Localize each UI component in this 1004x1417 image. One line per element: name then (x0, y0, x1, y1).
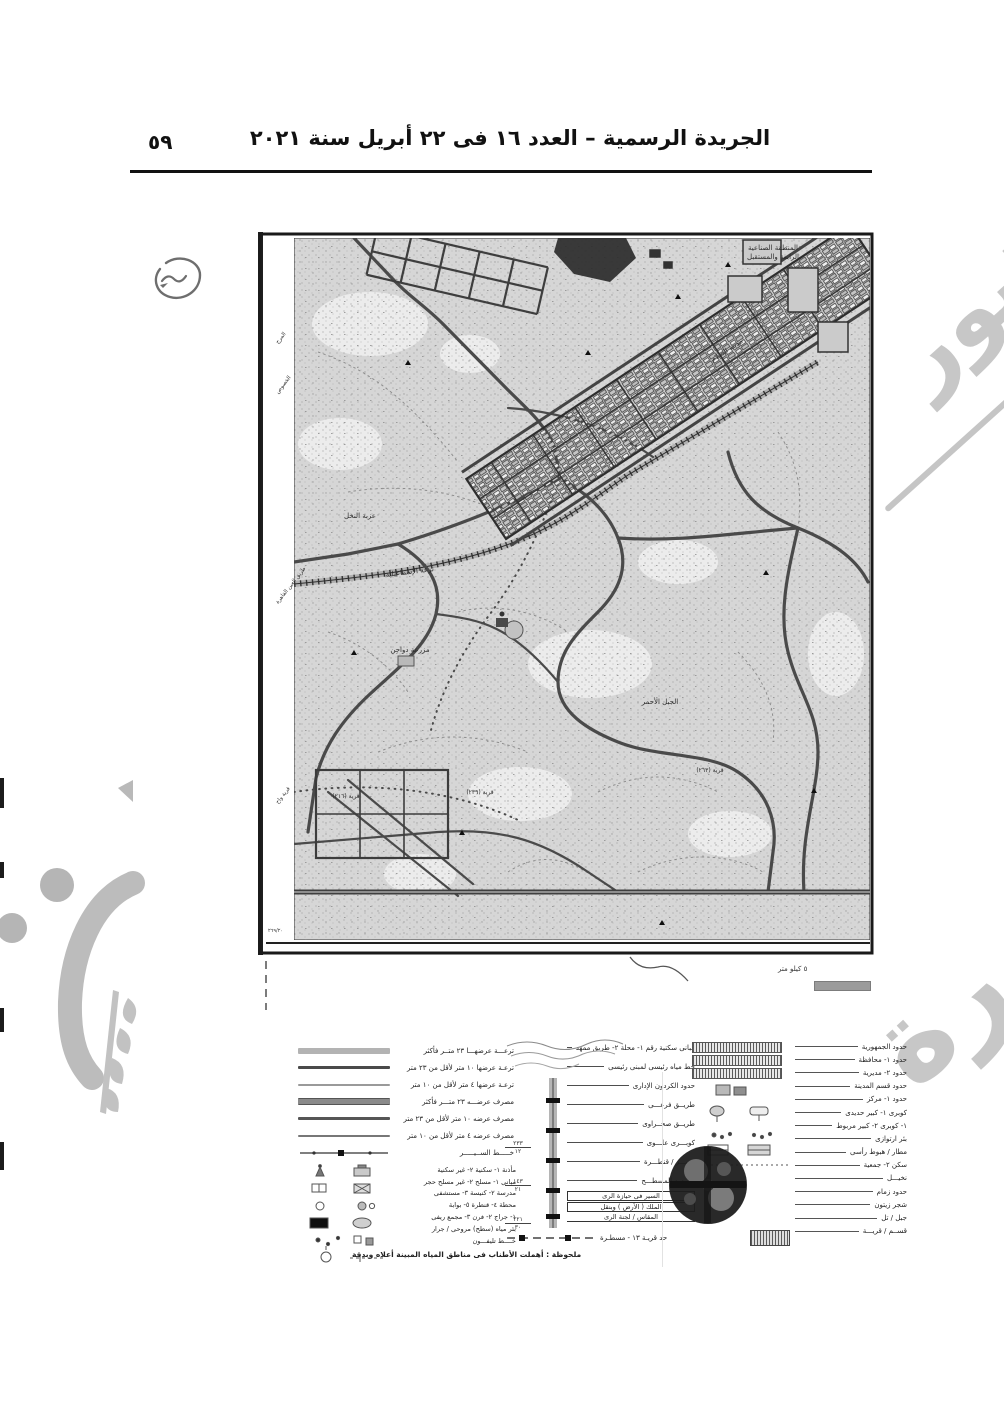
canal-wide-line-sample (298, 1048, 396, 1054)
map-corner-number: ٢٦٩/٢٠ (268, 928, 283, 934)
scale-bar (814, 981, 871, 991)
page-number: ٥٩ (148, 130, 172, 154)
map-label: قرية (٢٦٣) (696, 767, 723, 774)
fold-line (662, 1072, 663, 1267)
header-rule (130, 170, 872, 173)
railway-sample (543, 1074, 563, 1234)
legend-row: جبل / تل (795, 1211, 907, 1224)
legend-row: بئر مياه (سطح) مروحى / جرار (396, 1223, 520, 1235)
legend-row: مصرف عرضـــه ٢٣ متـــر فأكثر (298, 1093, 520, 1110)
contour-sample (505, 1038, 625, 1072)
legend-row: بئر ارتوازى (795, 1132, 907, 1145)
legend-row: مصرف عرضه ٤ متر لأقل من ١٠ متر (298, 1127, 520, 1144)
scale-label: ٥ كيلو متر (778, 965, 807, 973)
watermark-slash (884, 382, 1004, 512)
legend-row: طريــق صحــراوى (567, 1114, 695, 1133)
legend-right-group: حدود الجمهورية حدود ١- محافظة حدود ٢- مد… (795, 1040, 907, 1238)
map-label: عزبة النخل (344, 512, 376, 520)
km-post-sample: ٢٢١ ٣٠ (505, 1216, 531, 1231)
drain-small-line-sample (298, 1135, 396, 1137)
page-title: الجريدة الرسمية – العدد ١٦ فى ٢٢ أبريل س… (240, 126, 780, 150)
legend-row: حدود الجمهورية (795, 1040, 907, 1053)
district-border-sample (692, 1068, 782, 1079)
compass-icon (150, 255, 208, 307)
scan-artifact (0, 862, 4, 878)
km-post-sample: ٢٣٣ ١٢ (505, 1140, 531, 1155)
map-label: قرية (٢١٦) (332, 793, 359, 800)
gazette-page: الجريدة الرسمية – العدد ١٦ فى ٢٢ أبريل س… (0, 0, 1004, 1417)
legend-row: حدود ١- مركز (795, 1093, 907, 1106)
map-label: قرية (٢٣٩) (466, 789, 493, 796)
legend-row: حدود ٢- مديرية (795, 1066, 907, 1079)
cadastral-map: المنطقة الصناعية الرابعة والمستقبل مدينة… (258, 232, 874, 955)
legend-row: ١- جراج ٢- فرن ٣- مجمع ريفى (396, 1211, 520, 1223)
map-content: المنطقة الصناعية الرابعة والمستقبل مدينة… (294, 232, 874, 940)
legend-row: حدود قسم المدينة (795, 1080, 907, 1093)
scan-artifact (0, 778, 4, 808)
legend-row: ترعـة عرضها ٤ متر لأقل من ١٠ متر (298, 1076, 520, 1093)
drain-wide-line-sample (298, 1098, 396, 1105)
legend-row: ترعـــة عرضهـــا ٢٣ متــر فأكثر (298, 1042, 520, 1059)
legend-row: ١- كوبرى ٢- كبير مربوط (795, 1119, 907, 1132)
scan-artifact (0, 1142, 4, 1170)
canal-small-line-sample (298, 1084, 396, 1086)
km-post-sample: ١٤٣ ٢١ (505, 1178, 531, 1193)
legend-row: طريــق فرعـــى (567, 1095, 695, 1114)
legend-row: نخيـــل (795, 1172, 907, 1185)
legend-row: محطة ٤- قنطرة ٥- بوابة (396, 1199, 520, 1211)
seal-hatch-box (750, 1230, 790, 1246)
official-seal (666, 1143, 750, 1227)
map-label: المنطقة الصناعية (748, 244, 798, 252)
legend-row: شجر زيتون (795, 1198, 907, 1211)
legend-note: ملحوظة : أهملت الأطناب فى مناطق المياه ا… (352, 1250, 581, 1259)
legend-row: قســم / قريـــة (795, 1225, 907, 1238)
legend-row: سكن ٢- جمعية (795, 1159, 907, 1172)
drain-medium-line-sample (298, 1117, 396, 1120)
watermark-upper-text: المنشور (868, 83, 1004, 410)
governorate-border-sample (692, 1055, 782, 1066)
map-label: الرابعة والمستقبل (747, 253, 799, 261)
map-label: مزرعة دواجن (390, 646, 429, 654)
legend-left-group: ترعـــة عرضهـــا ٢٣ متــر فأكثر ترعـة عر… (298, 1042, 520, 1268)
gazette-logo-watermark (0, 760, 200, 1200)
legend-row: حد قريـة ١٣ - مسطـرة (505, 1228, 695, 1247)
republic-border-sample (692, 1042, 782, 1053)
legend-row: خــــط تليفـــون (396, 1235, 520, 1247)
legend-row: مأذنة ١- سكنية ٢- غير سكنية (396, 1164, 520, 1176)
scan-artifact (0, 1008, 4, 1032)
legend-row: مطار / هبوط رأسى (795, 1146, 907, 1159)
legend-row: كوبرى ١- كبير حديدى (795, 1106, 907, 1119)
legend-row: حدود الكردون الإدارى (567, 1076, 695, 1095)
legend-row: خـــــط الســيـــــر (298, 1144, 520, 1161)
legend-row: حدود زمام (795, 1185, 907, 1198)
canal-medium-line-sample (298, 1066, 396, 1069)
legend-row: حدود ١- محافظة (795, 1053, 907, 1066)
legend-row: ترعـة عرضها ١٠ متر لأقل من ٢٣ متر (298, 1059, 520, 1076)
track-line-sample (298, 1148, 396, 1158)
legend-row: مصرف عرضه ١٠ متر لأقل من ٢٣ متر (298, 1110, 520, 1127)
legend-row: مدرسة ٢- كنيسة ٣- مستشفى (396, 1188, 520, 1200)
map-label: الجبل الأحمر (641, 697, 678, 706)
legend-row: مبانى ١- مسلح ٢- غير مسلح حجر (396, 1176, 520, 1188)
